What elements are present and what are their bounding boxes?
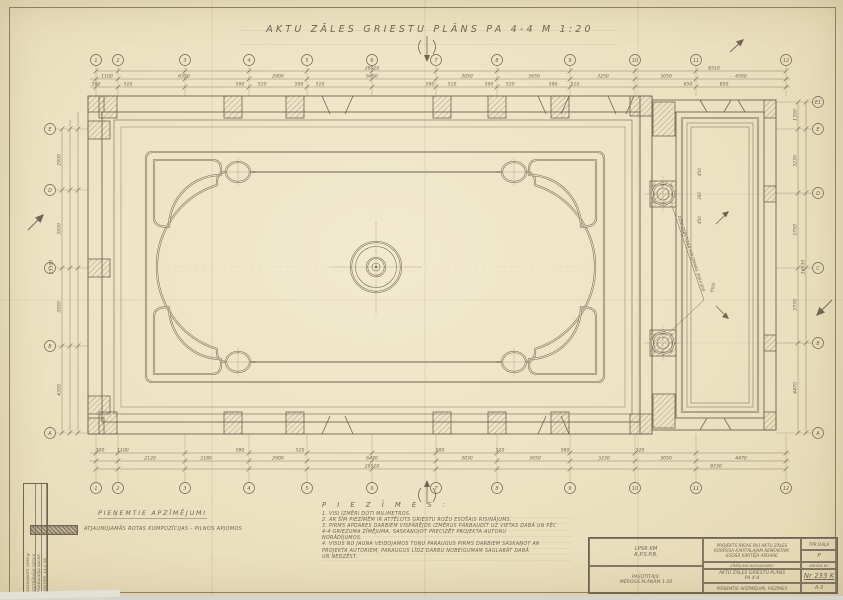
grid-bubble-bottom-label: 5 [305,486,308,492]
dim-label: 1350 [793,109,799,121]
dim-label: 3650 [528,74,540,80]
title-block-client: PASŪTĪTĀJS: MĒROGS PLĀNAM 1:20 [589,566,703,593]
grid-bubble-right-label: E1 [815,100,821,106]
grid-bubble-bottom-label: 4 [247,486,250,492]
dim-label: 4350 [57,384,63,396]
grid-bubble-right-label: B [816,341,820,347]
dim-label: 590 [295,82,304,88]
grid-bubble-right-label: C [816,266,820,272]
title-block-org: LPSR KM R.P.S.P.B. [589,538,703,566]
dim-label: 3180 [200,456,212,462]
scan-edge [0,596,843,600]
stage-label: TPR DAĻA [802,542,836,547]
dim-label: 4500 [709,282,717,294]
drawing-sheet: DZELZSBETONA KOLONNAS 300×300 [0,0,843,600]
grid-bubble-right-label: A [815,431,820,437]
grid-bubble-top-label: 10 [632,58,638,64]
stamp-row: PĀRBAUDĪJA KALNS [36,485,42,592]
project-line3: ESOŠĀ KĀRTĒJĀ APDARE [704,553,800,558]
note-line: 4. VISUS NO JAUNA VEIDOJAMOS TOŅU PARAUG… [322,542,572,548]
grid-bubble-left-label: E [48,127,52,133]
stamp-row: SASKAŅOTS 1958.g. [25,485,31,592]
grid-bubble-bottom-label: 8 [495,486,498,492]
grid-bubble-bottom-label: 3 [183,486,186,492]
grid-bubble-top-label: 3 [183,58,186,64]
note-line: UN NEDZĒST. [322,555,572,561]
grid-bubble-bottom-label: 11 [693,486,699,492]
dim-label: 3050 [660,74,672,80]
dim-label: 2900 [272,456,284,462]
dim-label: 3950 [57,223,63,235]
dim-label: 3650 [529,456,541,462]
dim-label: 520 [636,448,645,454]
sheet-title-line2: PA 4-4 [704,576,800,581]
grid-bubble-bottom-label: 6 [370,486,373,492]
margin-arrow-left [28,214,44,230]
title-block-sheet-title: AKTU ZĀLES GRIESTU PLĀNS PA 4-4 [703,569,801,583]
title-block-name-label: ZĪMĒJUMA NOSAUKUMS: [703,562,801,569]
name-label: ZĪMĒJUMA NOSAUKUMS: [704,564,800,568]
grid-bubble-top-label: 1 [94,58,97,64]
dim-label: 6550 [178,74,190,80]
grid-bubble-bottom-label: 10 [632,486,638,492]
dim-label: 650 [720,82,729,88]
dim-label: 1100 [117,448,129,454]
dim-label: 520 [296,448,305,454]
stage-value: P [802,553,836,559]
dim-label: 590 [92,82,101,88]
dim-label: 2900 [57,154,63,166]
dim-label: 520 [496,448,505,454]
dim-label: 580 [561,448,570,454]
grid-bubble-bottom-label: 12 [783,486,789,492]
grid-bubble-top-label: 7 [434,58,438,64]
drawing-title: AKTU ZĀLES GRIESTU PLĀNS PA 4-4 M 1:20 [220,24,640,35]
legend-title: PIEŅEMTIE APZĪMĒJUMI [98,510,207,519]
dim-label: 510 [571,82,580,88]
dim-label: 3950 [57,301,63,313]
dim-label: 3050 [461,74,473,80]
dim-label: 8530 [710,464,722,470]
grid-bubble-top-label: 2 [116,58,119,64]
grid-bubble-bottom-label: 7 [434,486,438,492]
margin-arrow-right [816,300,832,316]
grid-bubble-top-label: 12 [783,58,789,64]
dim-label: 4500 [735,74,747,80]
dim-label: 3250 [597,74,609,80]
archive-label: ARHĪVA Nr. [802,564,836,568]
grid-bubble-bottom-label: 9 [568,486,571,492]
dim-label: 4470 [793,382,799,394]
dim-label: 580 [236,448,245,454]
dim-label: 29510 [365,464,380,470]
grid-bubble-top-label: 4 [247,58,250,64]
dim-label: 590 [426,82,435,88]
dim-label: 3050 [660,456,672,462]
dim-label: 510 [316,82,325,88]
dim-label: 2120 [144,456,156,462]
grid-bubble-top-label: 6 [370,58,373,64]
title-block-subtitle: PIEŅEMTIE APZĪMĒJUMI, PIEZĪMES [703,583,801,593]
dim-label: 510 [124,82,133,88]
client-line2: MĒROGS PLĀNAM 1:20 [590,580,702,585]
dim-label: 3230 [793,155,799,167]
dim-label: 8510 [708,66,720,72]
ceiling-frames [114,118,758,414]
dim-label: 2900 [272,74,284,80]
legend: PIEŅEMTIE APZĪMĒJUMI ATJAUNOJAMĀS ROTAS … [30,500,310,535]
dim-label: 590 [549,82,558,88]
dim-label: 510 [448,82,457,88]
sheet-subtitle: PIEŅEMTIE APZĪMĒJUMI, PIEZĪMES [704,586,800,591]
legend-item-label: ATJAUNOJAMĀS ROTAS KOMPOZĪCIJAS - PILNOS… [84,526,242,532]
title-block-archive-label: ARHĪVA Nr. [801,562,837,569]
notes-title: P I E Z Ī M E S : [322,501,572,509]
dim-label: 15300 [49,260,55,275]
notes-block: P I E Z Ī M E S : 1. VISI IZMĒRI DOTI MI… [322,501,572,561]
dim-label: 650 [684,82,693,88]
dim-label: 450 [697,168,702,176]
dim-label: 6450 [366,74,378,80]
dim-label: 510 [258,82,267,88]
title-block-format: A-3 [801,583,837,593]
centerlines [160,158,810,376]
grid-bubble-left-label: B [48,344,52,350]
dim-label: 3750 [793,224,799,236]
dim-label: 300 [697,192,702,200]
hall-walls [88,96,776,434]
dim-label: 3730 [793,299,799,311]
dim-label: 510 [506,82,515,88]
grid-bubble-top-label: 9 [568,58,571,64]
dim-label: 16530 [801,260,807,275]
grid-bubble-top-label: 5 [305,58,308,64]
grid-bubble-top-label: 8 [495,58,498,64]
grid-bubble-bottom-label: 2 [116,486,119,492]
grid-bubble-right-label: E [816,127,820,133]
annex-section-arrows [716,211,729,319]
dim-label: 450 [697,216,702,224]
grid-bubble-bottom-label: 1 [94,486,97,492]
dim-label: 3230 [598,456,610,462]
dim-label: 590 [485,82,494,88]
drawing-number: Nr 233 K [802,572,836,580]
dim-label: 590 [236,82,245,88]
title-block-project: PROJEKTS RĪGAS PILĪ AKTU ZĀLES KORPUSA K… [703,538,801,562]
title-block-number: Nr 233 K [801,569,837,583]
dim-label: 6470 [366,456,378,462]
title-block: LPSR KM R.P.S.P.B. PASŪTĪTĀJS: MĒROGS PL… [588,537,838,594]
section-marker-top [419,36,436,62]
grid-bubble-left-label: A [47,431,52,437]
dim-label: 580 [436,448,445,454]
notes-list: 1. VISI IZMĒRI DOTI MILIMETROS.2. AR ŠĪM… [322,512,572,561]
dim-label: 28010 [365,66,380,72]
dim-label: 1100 [101,74,113,80]
grid-bubble-right-label: D [816,191,820,197]
title-block-stage-value: P [801,550,837,562]
grid-bubble-left-label: D [48,188,52,194]
title-block-stage-label: TPR DAĻA [801,538,837,550]
pilasters [88,96,776,434]
sheet-format: A-3 [802,585,836,591]
grid-bubble-top-label: 11 [693,58,699,64]
dim-label: 3030 [461,456,473,462]
stamp-row: APSTIPR. 14.V 58. [42,485,48,592]
org-line2: R.P.S.P.B. [590,552,702,558]
signature-stamp-strip: SASKAŅOTS 1958.g.IZSTRĀDĀJA OZOLSPĀRBAUD… [23,483,48,594]
margin-arrow-top-right [730,39,744,52]
dim-label: 300 [96,448,105,454]
dim-label: 4470 [735,456,747,462]
